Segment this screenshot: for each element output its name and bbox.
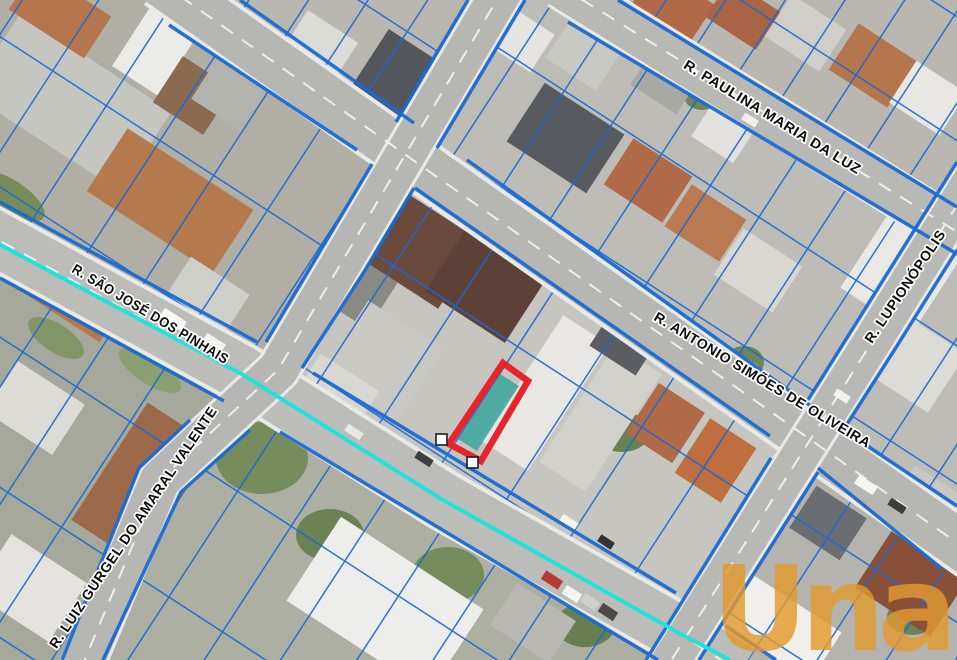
vertex-marker-icon[interactable]: [436, 434, 447, 445]
watermark-logo: Una: [712, 540, 950, 660]
vertex-marker-icon[interactable]: [467, 457, 478, 468]
map-viewport[interactable]: R. PAULINA MARIA DA LUZ R. SÃO JOSÉ DOS …: [0, 0, 957, 660]
map-canvas[interactable]: R. PAULINA MARIA DA LUZ R. SÃO JOSÉ DOS …: [0, 0, 957, 660]
